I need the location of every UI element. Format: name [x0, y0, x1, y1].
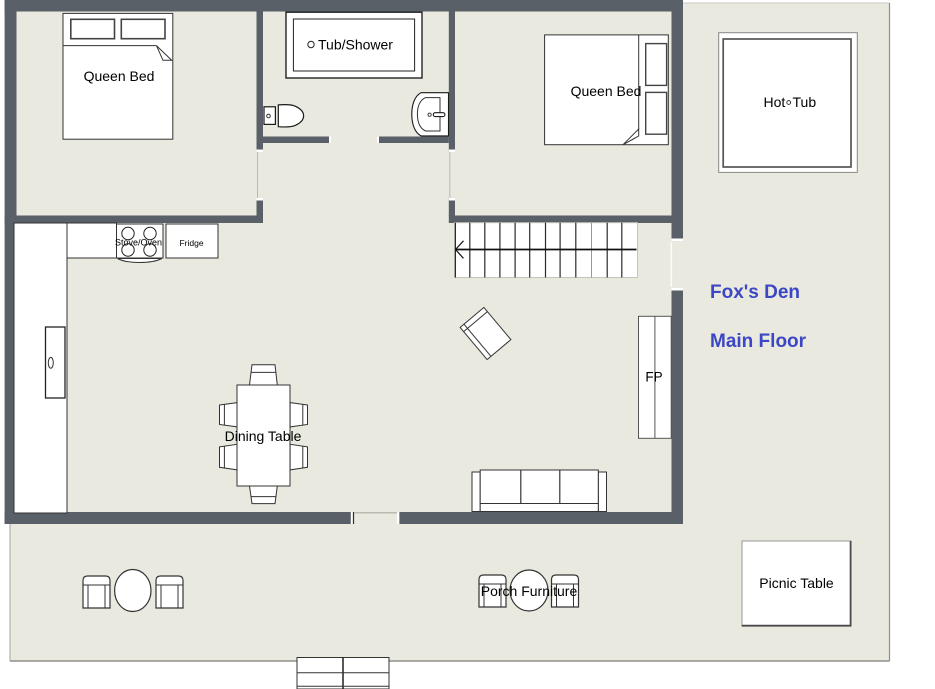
svg-text:Queen Bed: Queen Bed: [571, 83, 642, 99]
svg-text:Tub/Shower: Tub/Shower: [318, 37, 393, 53]
svg-text:FP: FP: [645, 370, 662, 385]
svg-text:Tub: Tub: [793, 94, 817, 110]
svg-text:Stove/Oven: Stove/Oven: [115, 238, 162, 248]
svg-text:Fox's Den: Fox's Den: [710, 282, 800, 303]
svg-text:Porch Furniture: Porch Furniture: [481, 583, 578, 599]
svg-text:Main Floor: Main Floor: [710, 331, 807, 352]
svg-text:Queen Bed: Queen Bed: [84, 68, 155, 84]
svg-text:Hot: Hot: [764, 94, 786, 110]
svg-text:Fridge: Fridge: [179, 238, 203, 248]
svg-text:Picnic Table: Picnic Table: [759, 575, 834, 591]
svg-text:Dining Table: Dining Table: [225, 428, 302, 444]
